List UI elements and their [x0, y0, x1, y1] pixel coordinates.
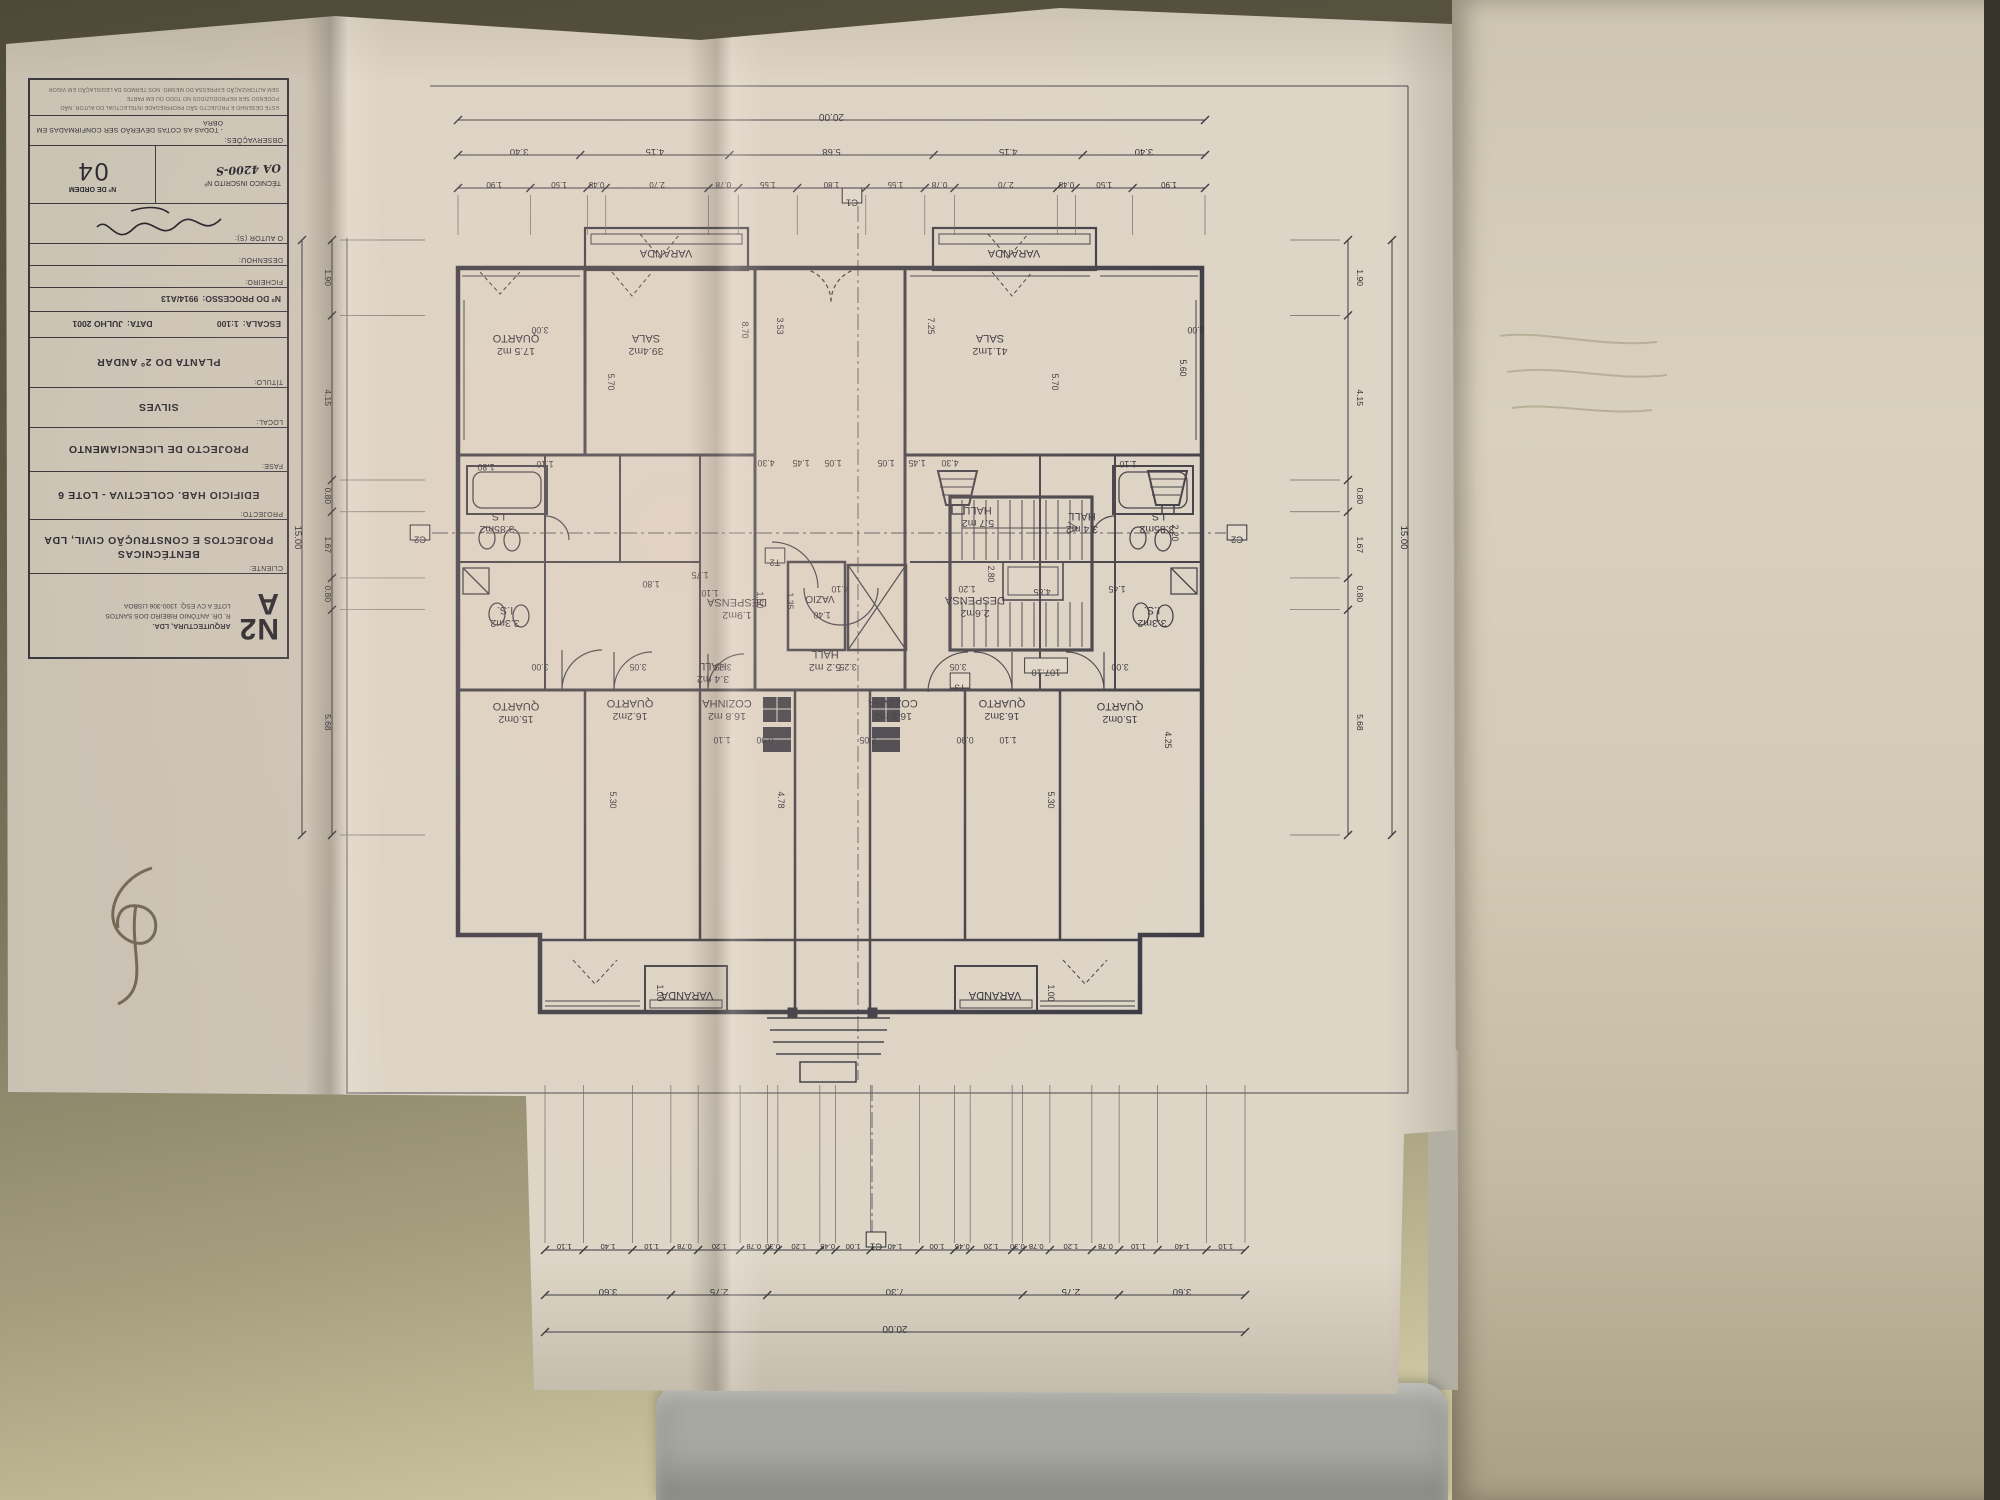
- mark-label: C1: [870, 1241, 882, 1252]
- mark-label: T3: [954, 682, 965, 693]
- dim-label: 1.40: [1175, 1242, 1190, 1251]
- dim-label: 15.00: [292, 526, 303, 550]
- field-ficheiro: FICHEIRO:: [30, 265, 287, 287]
- dim-label: 1.10: [1131, 1242, 1146, 1251]
- dim-label: 1.50: [551, 180, 567, 189]
- dim-label: 0.78: [677, 1242, 692, 1251]
- dim-label: 3.60: [599, 1286, 618, 1297]
- firm-address-2: LOTE A CV ESQ. 1300-306 LISBOA: [105, 600, 230, 610]
- dim-label: 0.78: [1029, 1242, 1044, 1251]
- dim-label: 3.05: [629, 662, 646, 672]
- dim-label: 1.10: [557, 1242, 572, 1251]
- room-label: QUARTO: [492, 700, 539, 712]
- field-projecto: PROJECTO: EDIFICIO HAB. COLECTIVA - LOTE…: [30, 471, 287, 519]
- room-label: VARANDA: [968, 989, 1021, 1001]
- dim-label: 0.90: [756, 735, 773, 745]
- room-label: SALA: [975, 332, 1004, 344]
- dim-label: 4.30: [757, 458, 774, 468]
- dim-label: 7.30: [886, 1286, 905, 1297]
- dim-label: 1.10: [713, 735, 730, 745]
- dim-label: 4.25: [1163, 731, 1173, 748]
- room-area: 3.4 m2: [1066, 523, 1098, 535]
- dim-label: 0.78: [746, 1242, 761, 1251]
- room-label: QUARTO: [978, 697, 1025, 709]
- dim-label: 1.80: [642, 579, 659, 589]
- faint-sketch-marks: [1452, 0, 2000, 1500]
- room-label: I.S.: [1149, 510, 1166, 522]
- room-area: 16.2m2: [612, 710, 647, 722]
- dim-label: 0.48: [588, 180, 604, 189]
- dim-label: 8.70: [740, 321, 750, 338]
- field-processo: Nº DO PROCESSO:9914/A13: [30, 287, 287, 311]
- dim-label: 1.55: [887, 180, 903, 189]
- mark-label: C2: [414, 534, 426, 545]
- table-edge-shadow: [1984, 0, 2000, 1500]
- dim-label: 2.70: [649, 180, 665, 189]
- room-label: VARANDA: [660, 989, 713, 1001]
- dim-label: 1.00: [655, 984, 665, 1001]
- dim-label: 1.00: [846, 1242, 861, 1251]
- room-label: I.S.: [497, 604, 514, 616]
- dim-label: 5.68: [323, 714, 333, 731]
- room-area: 15.0m2: [498, 713, 533, 725]
- dim-label: 3.00: [1187, 325, 1204, 335]
- room-label: DESPENSA: [944, 594, 1005, 606]
- entrance-steps: [767, 1008, 890, 1082]
- dim-label: 0.78: [931, 180, 947, 189]
- dim-label: 3.53: [775, 317, 785, 334]
- dim-label: 1.20: [712, 1242, 727, 1251]
- doors: [545, 268, 1115, 692]
- dim-label: 5.68: [822, 146, 841, 157]
- dim-label: 1.10: [1218, 1242, 1233, 1251]
- room-area: 3.3m2: [1137, 617, 1166, 629]
- mark-label: C1: [846, 197, 858, 208]
- dim-label: 0.30: [765, 1242, 780, 1251]
- room-area: 5.7 m2: [962, 517, 994, 529]
- dim-label: 20.00: [882, 1323, 907, 1334]
- main-drawing-sheet: 20.003.404.155.684.153.401.901.500.482.7…: [0, 0, 1460, 1398]
- dim-label: 5.70: [606, 373, 616, 390]
- dim-label: 1.10: [999, 735, 1016, 745]
- room-label: SALA: [631, 332, 660, 344]
- dim-label: 4.15: [646, 146, 665, 157]
- field-tecnico-ordem: TÉCNICO INSCRITO Nº OA 4200-S Nº DE ORDE…: [30, 145, 287, 203]
- dim-label: 2.20: [1170, 524, 1180, 541]
- dim-label: 0.45: [955, 1242, 970, 1251]
- dim-label: 2.75: [1062, 1286, 1081, 1297]
- dim-label: 0.80: [1355, 586, 1365, 603]
- dim-label: 4.10: [831, 584, 848, 594]
- dim-label: 1.35: [785, 592, 795, 609]
- mark-label: C2: [1231, 534, 1243, 545]
- n2a-logo: N2 A: [239, 591, 279, 640]
- field-escala-data: ESCALA:1:100 DATA:JULHO 2001: [30, 311, 287, 337]
- dim-label: 1.90: [1160, 180, 1176, 189]
- dim-label: 0.80: [1355, 488, 1365, 505]
- bathtub-icon: [467, 466, 1193, 514]
- dim-label: 3.05: [949, 662, 966, 672]
- dim-label: 0.90: [956, 735, 973, 745]
- dim-label: 0.78: [1098, 1242, 1113, 1251]
- mark-label: 107.10: [1031, 667, 1060, 678]
- dim-label: 1.75: [691, 570, 708, 580]
- room-area: 15.0m2: [1102, 713, 1137, 725]
- room-area: 1.9m2: [722, 609, 751, 621]
- dim-label: 1.45: [1108, 584, 1125, 594]
- dim-label: 4.15: [999, 146, 1018, 157]
- dim-label: 15.00: [1398, 526, 1409, 550]
- dim-label: 1.40: [813, 610, 830, 620]
- field-titulo: TÍTULO: PLANTA DO 2º ANDAR: [30, 337, 287, 387]
- dim-label: 1.90: [486, 180, 502, 189]
- dim-label: 1.10: [701, 588, 718, 598]
- dim-label: 1.40: [888, 1242, 903, 1251]
- field-desenhou: DESENHOU:: [30, 243, 287, 265]
- dim-label: 5.68: [1355, 714, 1365, 731]
- dim-label: 2.80: [986, 565, 996, 582]
- title-block-logo-row: N2 A ARQUITECTURA, LDA. R. DR. ANTÓNIO R…: [30, 573, 287, 657]
- mark-label: VAZIO: [805, 593, 834, 604]
- room-area: 16.3m2: [984, 710, 1019, 722]
- dim-label: 4.85: [1033, 587, 1050, 597]
- sheet-title: PLANTA DO 2º ANDAR: [30, 338, 287, 387]
- dim-label: 3.25: [839, 662, 856, 672]
- room-area: 16.8 m2: [708, 710, 746, 722]
- dim-label: 1.67: [1355, 537, 1365, 554]
- mark-label: T2: [769, 557, 780, 568]
- room-area: 16.8 m2: [874, 710, 912, 722]
- dim-label: 0.30: [1010, 1242, 1025, 1251]
- photo-of-floor-plan: 20.003.404.155.684.153.401.901.500.482.7…: [0, 0, 2000, 1500]
- room-area: 5.2 m2: [809, 661, 841, 673]
- dim-label: 1.05: [877, 458, 894, 468]
- room-label: VARANDA: [987, 247, 1040, 259]
- field-local: LOCAL: SILVES: [30, 387, 287, 427]
- dim-label: 5.70: [1050, 373, 1060, 390]
- dim-label: 1.05: [824, 458, 841, 468]
- dim-label: 3.60: [1173, 1286, 1192, 1297]
- handwritten-mark: [113, 868, 156, 1004]
- field-autor: O AUTOR (S):: [30, 203, 287, 243]
- room-label: HALL: [964, 504, 992, 516]
- room-area: 3.85m2: [1139, 523, 1174, 535]
- order-number: 04: [77, 157, 109, 186]
- dim-label: 2.70: [998, 180, 1014, 189]
- dim-label: 1.90: [1355, 269, 1365, 286]
- dim-label: 1.20: [984, 1242, 999, 1251]
- dim-label: 3.40: [510, 146, 529, 157]
- room-label: QUARTO: [606, 697, 653, 709]
- dim-label: 0.45: [820, 1242, 835, 1251]
- dim-label: 7.25: [926, 317, 936, 334]
- dim-label: 4.15: [1355, 389, 1365, 406]
- dim-label: 1.40: [601, 1242, 616, 1251]
- room-area: 17.5 m2: [497, 345, 535, 357]
- dim-label: 1.00: [930, 1242, 945, 1251]
- dim-label: 4.78: [776, 791, 786, 808]
- tecnico-number-handwritten: OA 4200-S: [216, 161, 282, 177]
- dim-label: 2.05: [859, 735, 876, 745]
- dim-label: 4.15: [323, 389, 333, 406]
- field-cliente: CLIENTE: BENTÉCNICASPROJECTOS E CONSTRUÇ…: [30, 519, 287, 573]
- dim-label: 1.10: [536, 459, 553, 469]
- room-area: 3.4 m2: [697, 673, 729, 685]
- dim-label: 1.60: [755, 591, 765, 608]
- dim-label: 1.45: [792, 458, 809, 468]
- elevator-shaft: [788, 562, 906, 650]
- room-label: VARANDA: [639, 247, 692, 259]
- firm-name: ARQUITECTURA, LDA.: [105, 620, 230, 631]
- dim-label: 1.80: [823, 180, 839, 189]
- dim-label: 3.25: [714, 662, 731, 672]
- fine-print: ESTE DESENHO E PROJECTO SÃO PROPRIEDADE …: [30, 80, 287, 115]
- dim-label: 1.20: [791, 1242, 806, 1251]
- dim-label: 1.50: [1096, 180, 1112, 189]
- dim-label: 1.45: [908, 458, 925, 468]
- dim-label: 1.67: [323, 537, 333, 554]
- dim-label: 3.00: [1111, 662, 1128, 672]
- dim-label: 0.78: [715, 180, 731, 189]
- second-paper-sheet: [1452, 0, 2000, 1500]
- field-observacoes: OBSERVAÇÕES: - TODAS AS COTAS DEVERÃO SE…: [30, 115, 287, 145]
- room-label: HALL: [811, 648, 839, 660]
- dim-label: 1.10: [644, 1242, 659, 1251]
- dim-label: 1.20: [958, 584, 975, 594]
- dim-label: 5.30: [1046, 791, 1056, 808]
- dim-label: 2.75: [710, 1286, 729, 1297]
- title-block: N2 A ARQUITECTURA, LDA. R. DR. ANTÓNIO R…: [28, 78, 289, 659]
- dim-label: 4.30: [941, 458, 958, 468]
- dim-label: 0.80: [323, 488, 333, 505]
- room-area: 41.1m2: [972, 345, 1007, 357]
- dim-label: 3.00: [531, 662, 548, 672]
- author-signature: [89, 203, 229, 241]
- dim-label: 1.00: [1046, 984, 1056, 1001]
- room-label: COZINHA: [702, 697, 752, 709]
- dim-label: 20.00: [819, 111, 844, 122]
- room-area: 2.6m2: [960, 607, 989, 619]
- dim-label: 1.20: [1063, 1242, 1078, 1251]
- dim-label: 1.90: [323, 269, 333, 286]
- dim-label: 1.55: [759, 180, 775, 189]
- field-fase: FASE: PROJECTO DE LICENCIAMENTO: [30, 427, 287, 471]
- room-area: 3.3m2: [490, 617, 519, 629]
- dim-label: 1.10: [1119, 459, 1136, 469]
- room-area: 3.85m2: [479, 523, 514, 535]
- room-label: I.S.: [1144, 604, 1161, 616]
- dim-label: 3.40: [1135, 146, 1154, 157]
- room-label: I.S.: [489, 510, 506, 522]
- dim-label: 0.80: [323, 586, 333, 603]
- grey-folder: [656, 1383, 1448, 1500]
- dim-label: 3.00: [531, 325, 548, 335]
- dim-label: 0.48: [1058, 180, 1074, 189]
- dim-label: 1.80: [477, 462, 494, 472]
- room-label: HALL: [1068, 510, 1096, 522]
- dim-label: 5.30: [608, 791, 618, 808]
- room-area: 39.4m2: [628, 345, 663, 357]
- room-label: COZINHA: [868, 697, 918, 709]
- room-label: QUARTO: [1096, 700, 1143, 712]
- dim-label: 5.60: [1178, 359, 1188, 376]
- firm-address-1: R. DR. ANTÓNIO RIBEIRO DOS SANTOS: [105, 610, 230, 620]
